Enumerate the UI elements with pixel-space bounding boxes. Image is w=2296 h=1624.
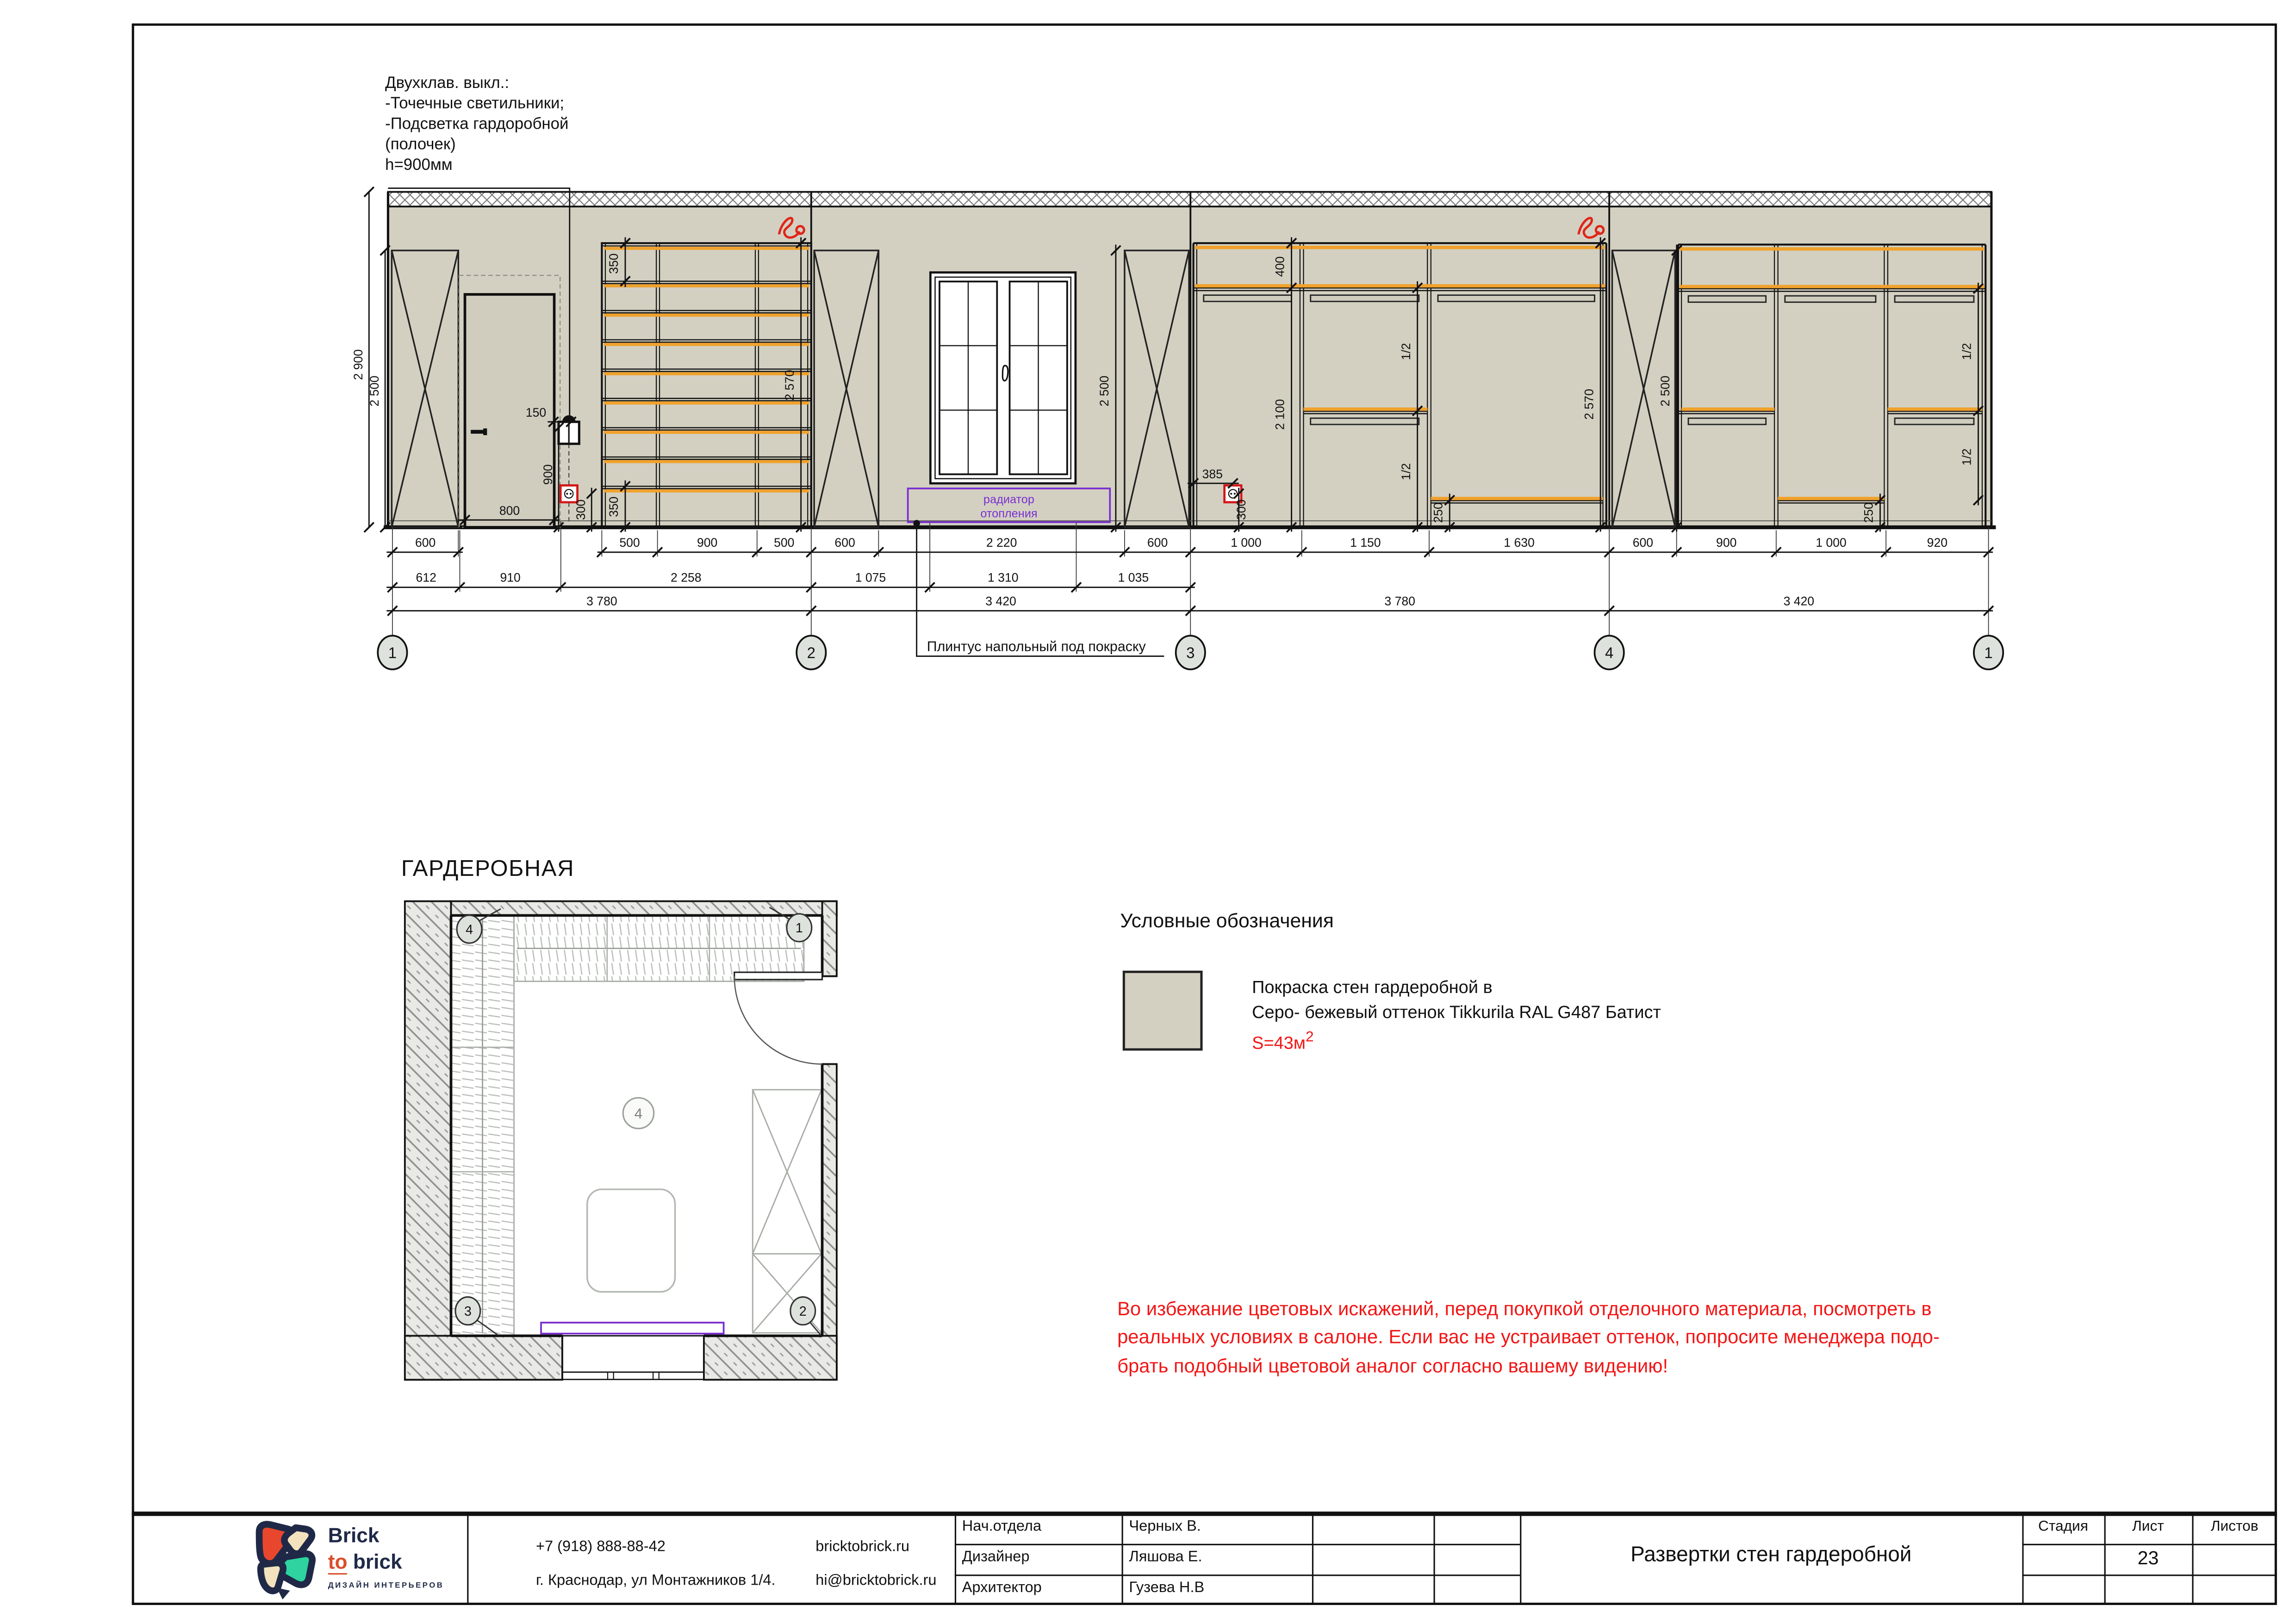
dim-label: 1 000 <box>1231 536 1261 550</box>
dim-label: 900 <box>1716 536 1736 550</box>
plan-cabinet-x <box>753 1090 821 1333</box>
dim-label: 3 780 <box>1384 594 1415 608</box>
warning-line: реальных условиях в салоне. Если вас не … <box>1117 1323 1940 1351</box>
dim-label: 3 780 <box>586 594 617 608</box>
dim-label: 1 035 <box>1118 571 1149 585</box>
staff-name: Черных В. <box>1129 1519 1201 1535</box>
titleblock-top-line <box>132 1512 2277 1515</box>
dim-label: 600 <box>834 536 855 550</box>
brand-tagline: ДИЗАЙН ИНТЕРЬЕРОВ <box>328 1582 444 1591</box>
titleblock-row-line <box>2022 1574 2277 1575</box>
window <box>930 272 1076 483</box>
column-sheets: Листов <box>2192 1519 2277 1535</box>
radiator-label-2: отопления <box>980 507 1037 520</box>
brand-name-line1: Brick <box>328 1523 380 1547</box>
contact-phone: +7 (918) 888-88-42 <box>536 1539 666 1555</box>
plan-pouf <box>587 1189 675 1292</box>
plan-title: ГАРДЕРОБНАЯ <box>401 857 574 883</box>
paint-swatch <box>1124 972 1201 1049</box>
staff-name: Ляшова Е. <box>1129 1549 1202 1566</box>
contact-website[interactable]: bricktobrick.ru <box>815 1539 909 1555</box>
document-title: Развертки стен гардеробной <box>1520 1544 2022 1568</box>
dim-label: 3 420 <box>985 594 1016 608</box>
dim-label: 600 <box>415 536 436 550</box>
titleblock-divider <box>1312 1513 1314 1604</box>
dim-label: 1 075 <box>855 571 886 585</box>
dim-label: 1/2 <box>1960 343 1974 360</box>
dim-label: 900 <box>541 464 555 485</box>
annotation-line: -Подсветка гардоробной <box>385 115 568 136</box>
contact-email[interactable]: hi@bricktobrick.ru <box>815 1573 936 1589</box>
column-stage: Стадия <box>2022 1519 2104 1535</box>
dim-label: 2 100 <box>1273 399 1287 430</box>
dim-label: 600 <box>1147 536 1168 550</box>
drawing-sheet: радиатор отопления <box>0 0 2296 1624</box>
contact-address: г. Краснодар, ул Монтажников 1/4. <box>536 1573 776 1589</box>
legend-area: S=43м2 <box>1252 1025 1661 1056</box>
staff-role: Архитектор <box>962 1580 1042 1596</box>
annotation-line: (полочек) <box>385 136 568 156</box>
warning-line: Во избежание цветовых искажений, перед п… <box>1117 1295 1940 1323</box>
dim-label: 250 <box>1862 502 1876 523</box>
titleblock-divider <box>467 1513 469 1604</box>
dim-label: 250 <box>1431 502 1445 523</box>
color-warning-note: Во избежание цветовых искажений, перед п… <box>1117 1295 1940 1380</box>
sheet-number: 23 <box>2104 1547 2192 1568</box>
brand-brick: brick <box>353 1549 402 1573</box>
dim-label: 150 <box>526 406 546 419</box>
floor-plan: 4 <box>405 901 837 1380</box>
dim-label: 500 <box>619 536 640 550</box>
brand-name-line2: to brick <box>328 1549 402 1573</box>
dim-label: 900 <box>697 536 717 550</box>
axis-bubble: 2 <box>799 1304 807 1319</box>
legend-area-sup: 2 <box>1306 1030 1314 1046</box>
elevation-drawing: радиатор отопления <box>351 187 2003 669</box>
dim-label: 2 258 <box>671 571 701 585</box>
dim-label: 385 <box>1202 467 1223 481</box>
radiator-label-1: радиатор <box>983 493 1034 506</box>
dim-label: 1 000 <box>1816 536 1846 550</box>
dim-label: 400 <box>1273 256 1287 277</box>
door-handle <box>471 430 485 434</box>
axis-bubble: 3 <box>464 1304 472 1319</box>
plan-room-mark-label: 4 <box>635 1105 643 1122</box>
dim-label: 2 500 <box>367 376 381 406</box>
axis-bubble: 1 <box>388 644 397 662</box>
axis-bubble: 1 <box>1984 644 1992 662</box>
entry-door <box>459 275 560 527</box>
dim-label: 350 <box>607 497 621 517</box>
dim-label: 2 500 <box>1658 376 1672 406</box>
dim-label: 612 <box>416 571 436 585</box>
dim-label: 1 630 <box>1504 536 1534 550</box>
dim-label: 350 <box>607 253 621 274</box>
axis-bubble: 4 <box>466 922 473 937</box>
dim-label: 1/2 <box>1960 449 1974 466</box>
column-sheet: Лист <box>2104 1519 2192 1535</box>
plan-radiator <box>541 1323 724 1334</box>
switch-annotation: Двухклав. выкл.: -Точечные светильники; … <box>385 75 568 176</box>
dim-label: 3 420 <box>1784 594 1814 608</box>
dim-label: 1 310 <box>988 571 1018 585</box>
titleblock-row-line <box>955 1574 1520 1575</box>
dim-label: 2 570 <box>783 370 796 400</box>
brick-to-brick-logo-icon <box>249 1519 319 1601</box>
titleblock-divider <box>1433 1513 1435 1604</box>
dim-label: 2 570 <box>1582 389 1596 419</box>
dim-label: 500 <box>774 536 794 550</box>
plan-door <box>734 972 837 1064</box>
legend-swatch <box>1122 970 1204 1052</box>
legend-description: Покраска стен гардеробной в Серо- бежевы… <box>1252 975 1661 1056</box>
dim-label: 300 <box>574 500 588 520</box>
annotation-line: -Точечные светильники; <box>385 95 568 115</box>
dim-label: 1 150 <box>1350 536 1381 550</box>
legend-line: Серо- бежевый оттенок Tikkurila RAL G487… <box>1252 1000 1661 1025</box>
staff-role: Дизайнер <box>962 1549 1030 1566</box>
axis-markers: 1 2 3 4 1 <box>378 636 2003 669</box>
legend-title: Условные обозначения <box>1120 910 1333 931</box>
titleblock-row-line <box>955 1544 1520 1545</box>
titleblock-row-line <box>2022 1544 2277 1545</box>
plinth-note: Плинтус напольный под покраску <box>927 639 1146 654</box>
titleblock-divider <box>955 1513 957 1604</box>
drawing-canvas: радиатор отопления <box>0 0 2296 1624</box>
brand-to: to <box>328 1549 348 1574</box>
annotation-line: h=900мм <box>385 156 568 176</box>
titleblock-divider <box>1122 1513 1124 1604</box>
dim-label: 920 <box>1927 536 1948 550</box>
legend-line: Покраска стен гардеробной в <box>1252 975 1661 1000</box>
staff-name: Гузева Н.В <box>1129 1580 1204 1596</box>
dim-label: 2 900 <box>351 350 365 380</box>
staff-role: Нач.отдела <box>962 1519 1041 1535</box>
axis-bubble: 1 <box>796 921 803 936</box>
dim-label: 1/2 <box>1399 463 1413 480</box>
dim-label: 2 220 <box>986 536 1017 550</box>
dim-label: 910 <box>500 571 520 585</box>
dim-label: 2 500 <box>1097 376 1111 406</box>
axis-bubble: 4 <box>1605 644 1613 662</box>
annotation-line: Двухклав. выкл.: <box>385 75 568 95</box>
dim-label: 600 <box>1633 536 1653 550</box>
axis-bubble: 3 <box>1186 644 1195 662</box>
warning-line: брать подобный цветовой аналог согласно … <box>1117 1351 1940 1380</box>
dim-label: 300 <box>1234 500 1248 520</box>
dim-label: 1/2 <box>1399 343 1413 360</box>
plan-window <box>541 1323 724 1380</box>
axis-bubble: 2 <box>807 644 815 662</box>
plinth-callout: Плинтус напольный под покраску <box>913 520 1164 656</box>
dim-label: 800 <box>499 504 520 518</box>
